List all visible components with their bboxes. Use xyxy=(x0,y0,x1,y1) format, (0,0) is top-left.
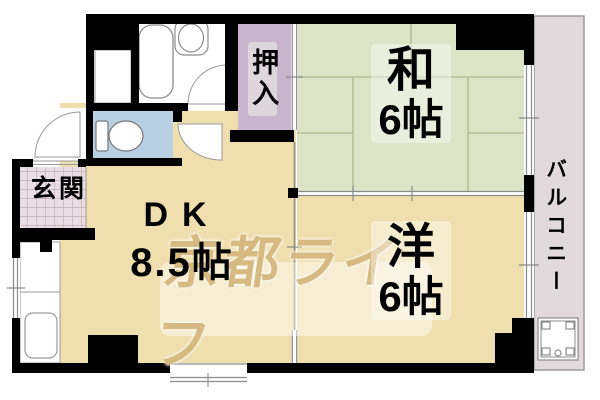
youshitsu-room-size: 6帖 xyxy=(373,274,449,319)
youshitsu-room-label: 洋 6帖 xyxy=(371,221,451,320)
balcony-label: バルコニー xyxy=(543,128,566,328)
utility-niche xyxy=(95,50,131,103)
toilet xyxy=(96,121,143,151)
bathtub xyxy=(139,25,173,98)
oshiire-closet-label: 押入 xyxy=(248,42,277,116)
dk-room-size: 8.5帖 xyxy=(82,242,282,285)
floor-plan: 京都ライフ DK 8.5帖 和 6帖 洋 6帖 押入 玄関 バルコニー xyxy=(0,0,600,400)
dk-room-label: DK 8.5帖 xyxy=(82,197,282,285)
youshitsu-room-name: 洋 xyxy=(373,222,449,274)
dk-room-name: DK xyxy=(82,197,282,234)
washitsu-room-name: 和 xyxy=(373,45,449,97)
genkan-entrance-label: 玄関 xyxy=(29,176,89,203)
kitchen-counter xyxy=(20,242,60,363)
washitsu-room-size: 6帖 xyxy=(373,97,449,142)
wash-basin xyxy=(175,20,208,55)
washitsu-room-label: 和 6帖 xyxy=(371,44,451,143)
